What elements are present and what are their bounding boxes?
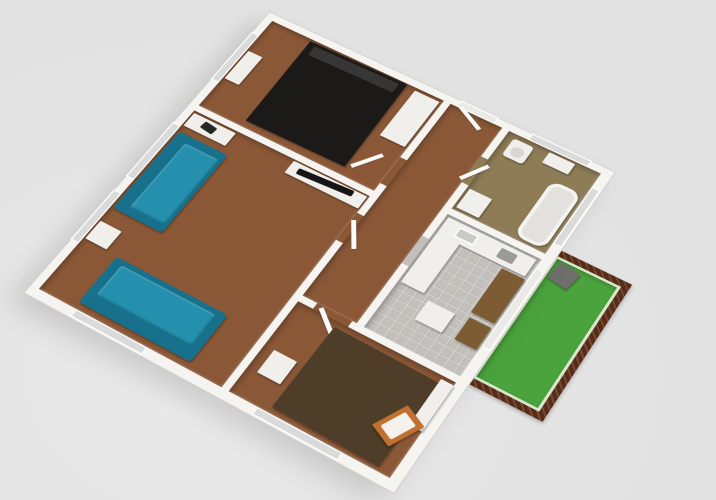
apartment-plan [18, 12, 716, 500]
laptop [200, 121, 218, 134]
floorplan-3d-render [0, 0, 716, 500]
toilet-seat [508, 145, 526, 160]
living-door-leaf [351, 220, 356, 249]
stove [496, 248, 518, 265]
